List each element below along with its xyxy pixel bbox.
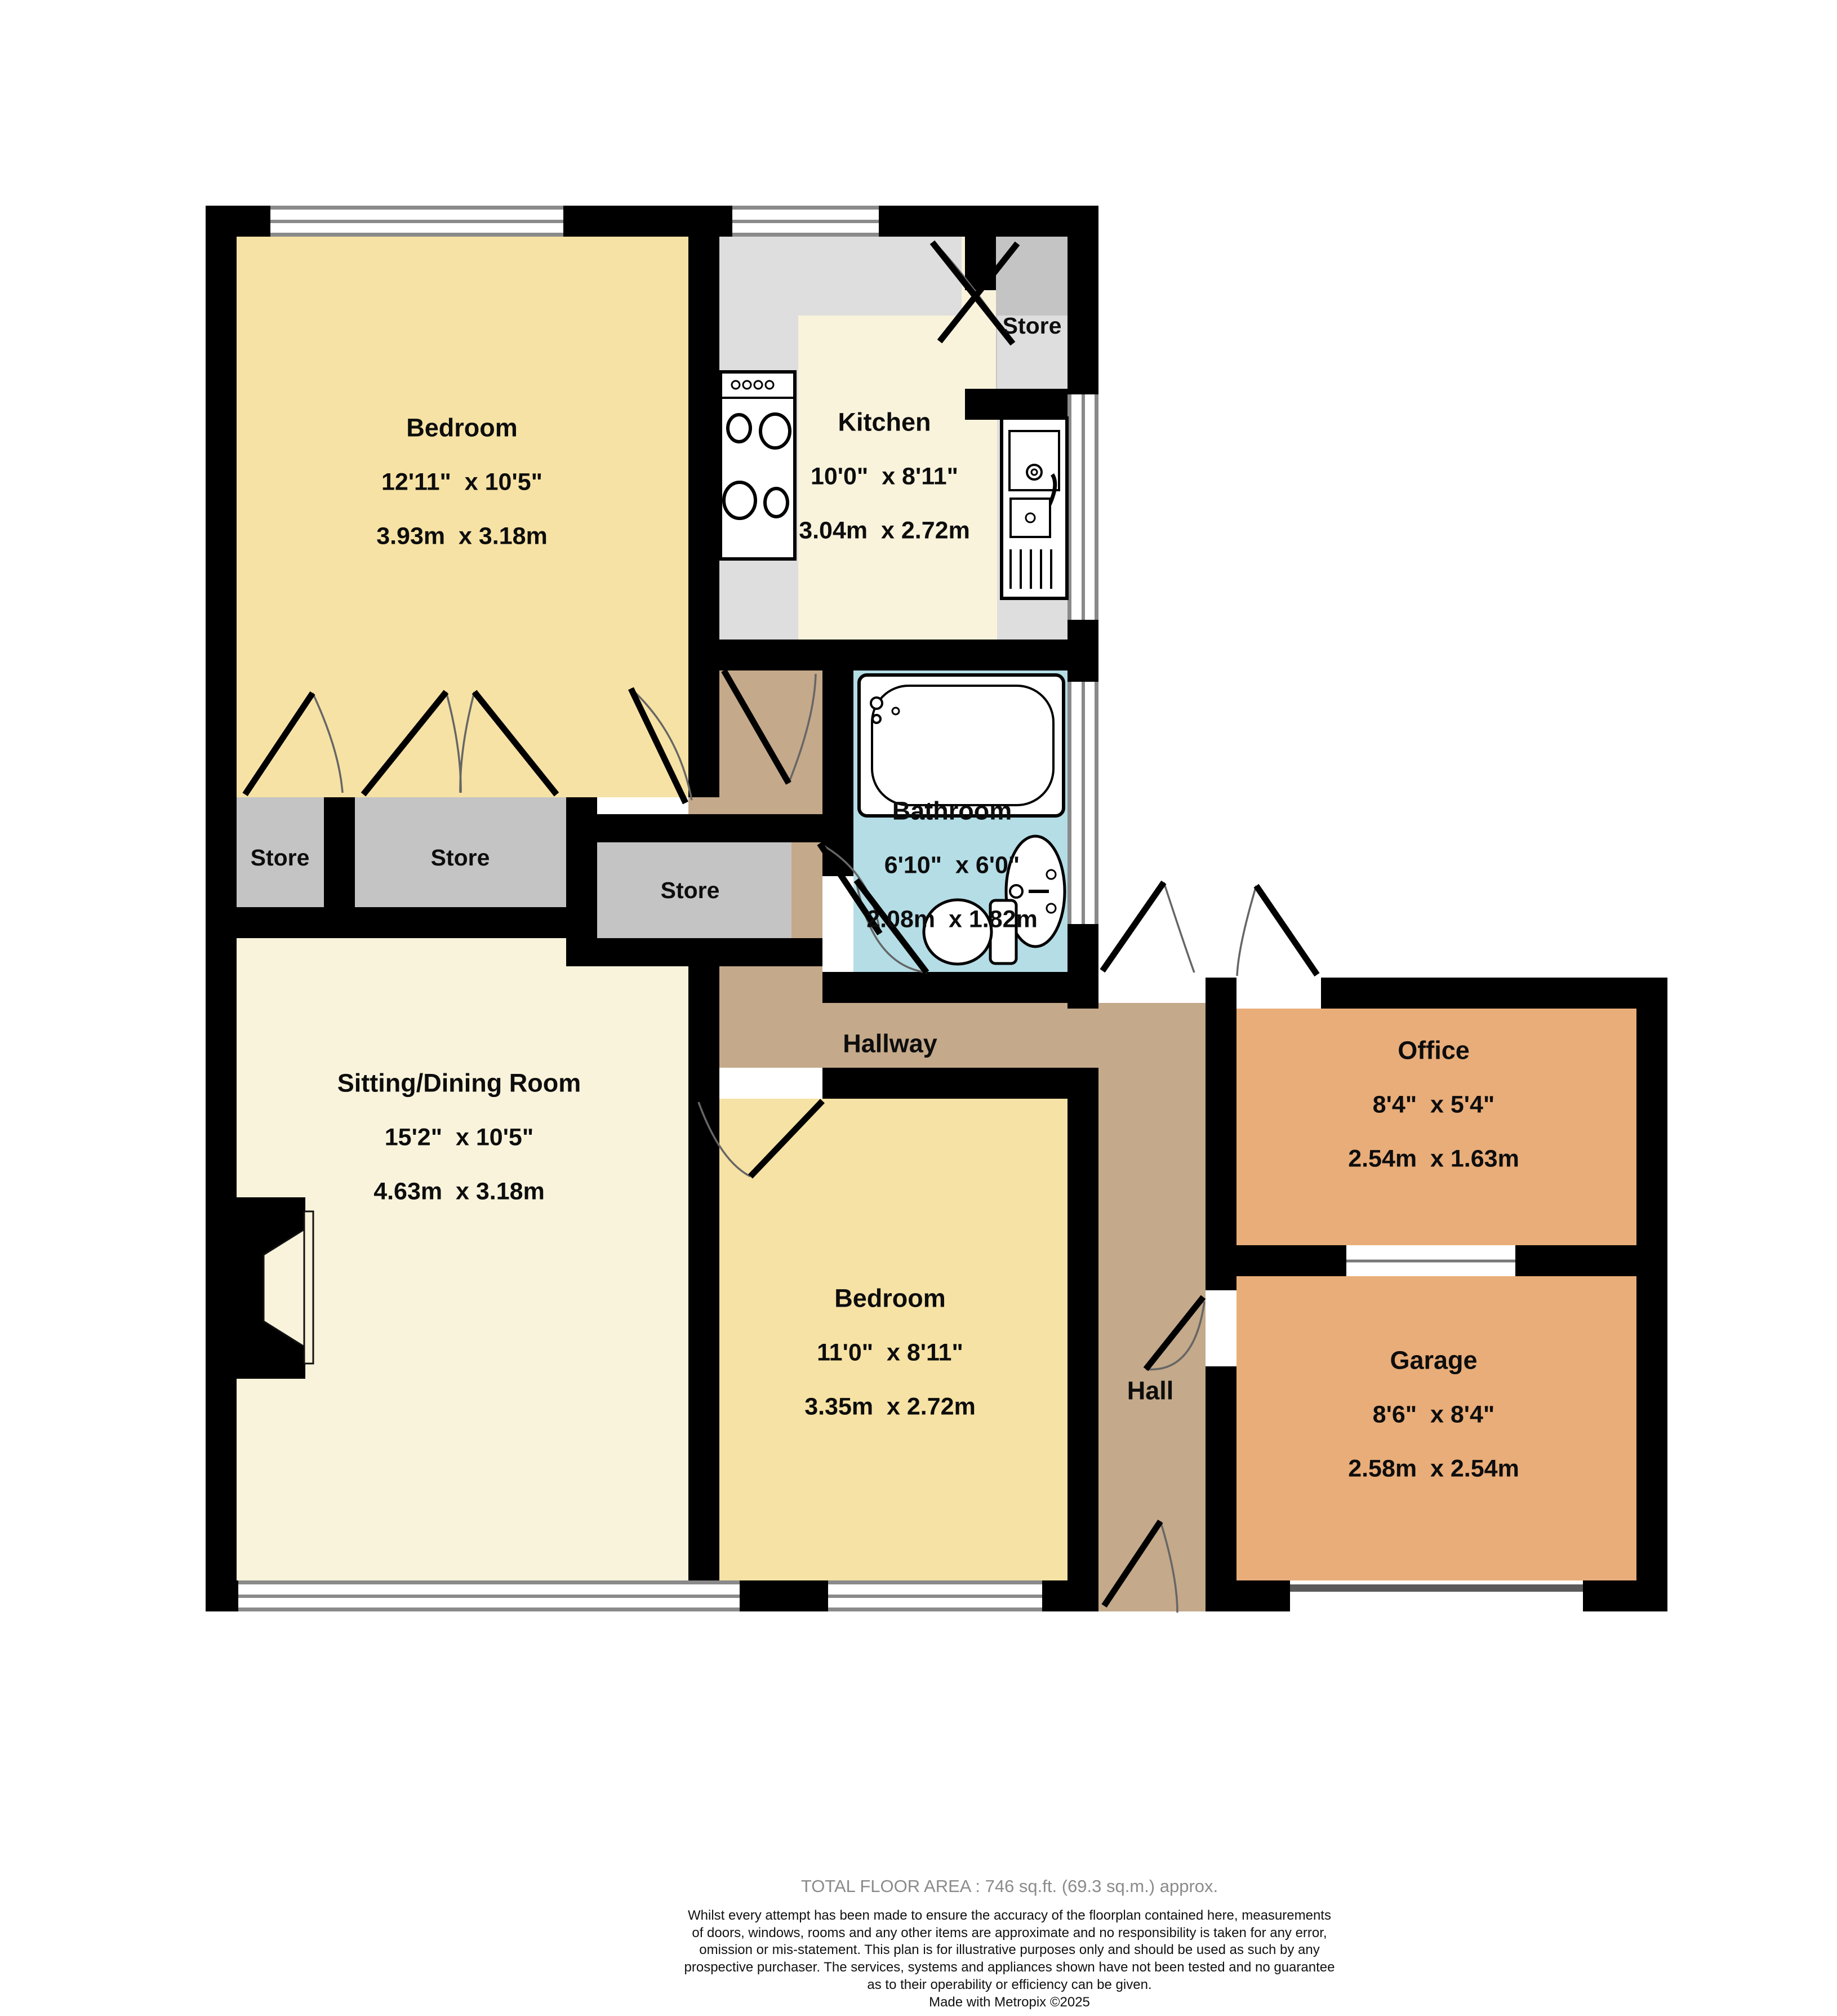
room-dims-imperial: 8'6" x 8'4" (1348, 1400, 1519, 1431)
wall (1321, 978, 1667, 1009)
disclaimer: Whilst every attempt has been made to en… (587, 1907, 1432, 2011)
kitchen-counter-east (997, 316, 1067, 640)
room-name: Bedroom (804, 1282, 976, 1315)
room-dims-imperial: 11'0" x 8'11" (804, 1338, 976, 1369)
wall (597, 814, 822, 842)
wall (1206, 1366, 1236, 1611)
wall (237, 907, 566, 938)
room-dims-imperial: 8'4" x 5'4" (1348, 1090, 1519, 1121)
room-label-office: Office 8'4" x 5'4" 2.54m x 1.63m (1348, 1011, 1519, 1197)
wall (1206, 1245, 1346, 1276)
disclaimer-line: prospective purchaser. The services, sys… (587, 1959, 1432, 1977)
room-name: Bedroom (376, 411, 548, 444)
wall (566, 797, 597, 938)
room-dims-metric: 3.35m x 2.72m (804, 1392, 976, 1423)
room-label-store-3: Store (661, 852, 720, 928)
room-name: Sitting/Dining Room (337, 1067, 581, 1099)
room-label-bedroom-1: Bedroom 12'11" x 10'5" 3.93m x 3.18m (376, 388, 548, 575)
room-label-hallway: Hallway (843, 1004, 937, 1082)
room-dims-metric: 2.08m x 1.82m (866, 904, 1038, 935)
window (270, 206, 563, 237)
room-name: Store (661, 876, 720, 905)
wall (965, 206, 996, 290)
wall (688, 206, 719, 797)
disclaimer-line: Whilst every attempt has been made to en… (587, 1907, 1432, 1925)
kitchen-counter-north (798, 237, 962, 316)
wall (1583, 1580, 1667, 1611)
window (1067, 394, 1098, 620)
room-name: Store (1003, 311, 1062, 340)
room-dims-metric: 2.58m x 2.54m (1348, 1454, 1519, 1485)
garage-door (1290, 1584, 1583, 1592)
room-dims-imperial: 12'11" x 10'5" (376, 467, 548, 498)
room-name: Office (1348, 1034, 1519, 1067)
wall (206, 206, 237, 1611)
wall (324, 797, 355, 907)
window (1067, 682, 1098, 924)
window (732, 206, 879, 237)
room-name: Hall (1127, 1374, 1174, 1407)
wall (1515, 1245, 1667, 1276)
disclaimer-line: as to their operability or efficiency ca… (587, 1977, 1432, 1994)
floorplan: Bedroom 12'11" x 10'5" 3.93m x 3.18m Kit… (0, 0, 1837, 2016)
room-dims-imperial: 10'0" x 8'11" (799, 461, 970, 492)
made-with-credit: Made with Metropix ©2025 (587, 1994, 1432, 2011)
disclaimer-line: of doors, windows, rooms and any other i… (587, 1925, 1432, 1942)
wall (1636, 1009, 1667, 1611)
room-sitting-dining (237, 938, 688, 1580)
room-dims-imperial: 6'10" x 6'0" (866, 850, 1038, 881)
room-name: Store (251, 843, 310, 872)
wall (822, 972, 1098, 1003)
room-label-bedroom-2: Bedroom 11'0" x 8'11" 3.35m x 2.72m (804, 1259, 976, 1445)
wall (688, 938, 719, 1580)
total-floor-area: TOTAL FLOOR AREA : 746 sq.ft. (69.3 sq.m… (615, 1876, 1404, 1897)
wall (1206, 978, 1236, 1009)
room-label-sitting-dining: Sitting/Dining Room 15'2" x 10'5" 4.63m … (337, 1043, 581, 1230)
wall (822, 640, 853, 876)
room-dims-metric: 4.63m x 3.18m (337, 1176, 581, 1207)
room-label-store-top: Store (1003, 288, 1062, 363)
room-label-bathroom: Bathroom 6'10" x 6'0" 2.08m x 1.82m (866, 771, 1038, 958)
room-label-store-1: Store (251, 820, 310, 895)
room-dims-imperial: 15'2" x 10'5" (337, 1122, 581, 1153)
window (828, 1580, 1042, 1611)
room-label-kitchen: Kitchen 10'0" x 8'11" 3.04m x 2.72m (799, 383, 970, 569)
room-name: Garage (1348, 1344, 1519, 1376)
wall (1067, 1068, 1098, 1611)
room-name: Store (431, 843, 490, 872)
room-name: Bathroom (866, 794, 1038, 827)
window (238, 1580, 740, 1611)
room-hall (1098, 1003, 1206, 1611)
room-dims-metric: 3.93m x 3.18m (376, 521, 548, 552)
room-label-garage: Garage 8'6" x 8'4" 2.58m x 2.54m (1348, 1321, 1519, 1507)
room-label-store-2: Store (431, 820, 490, 895)
room-label-hall: Hall (1127, 1351, 1174, 1429)
room-dims-metric: 3.04m x 2.72m (799, 516, 970, 547)
wall (1206, 1580, 1290, 1611)
room-dims-metric: 2.54m x 1.63m (1348, 1144, 1519, 1175)
disclaimer-line: omission or mis-statement. This plan is … (587, 1942, 1432, 1959)
wall (719, 640, 1098, 670)
room-name: Hallway (843, 1027, 937, 1060)
room-name: Kitchen (799, 406, 970, 438)
kitchen-counter-west (719, 237, 798, 642)
